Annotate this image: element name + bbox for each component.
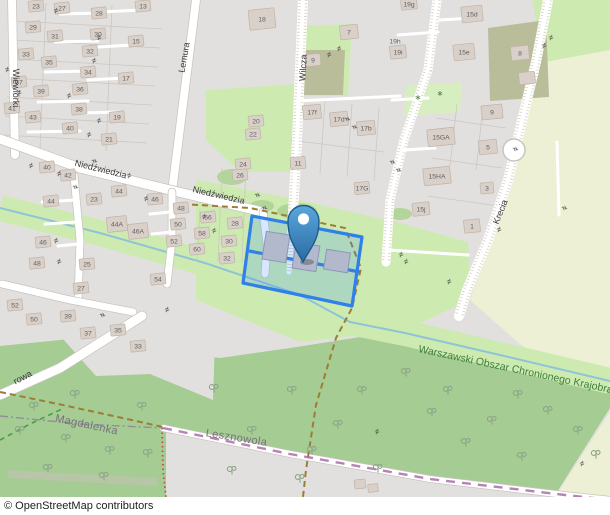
parcel-building <box>262 231 290 262</box>
house-number: 36 <box>76 87 84 94</box>
house-number: 37 <box>84 331 92 338</box>
house-number: 40 <box>66 126 74 133</box>
house-number: 30 <box>225 239 233 246</box>
house-number: 17 <box>122 76 130 83</box>
house-number: 3 <box>485 186 489 193</box>
house-number: 25 <box>83 262 91 269</box>
house-number: 48 <box>177 206 185 213</box>
house-number: 44 <box>47 199 55 206</box>
house-number: 33 <box>22 52 30 59</box>
house-number: 39 <box>64 314 72 321</box>
house-number: 1 <box>470 224 474 231</box>
house-number: 46 <box>151 197 159 204</box>
house-number: 35 <box>45 60 53 67</box>
attribution[interactable]: © OpenStreetMap contributors <box>0 497 610 515</box>
attribution-text[interactable]: © OpenStreetMap contributors <box>4 500 153 512</box>
house-number: 42 <box>64 173 72 180</box>
house-number: 32 <box>86 49 94 56</box>
house-number: 15 <box>132 39 140 46</box>
house-number: 52 <box>170 239 178 246</box>
plant-icon: ∗ <box>437 89 444 98</box>
house-number: 46 <box>39 240 47 247</box>
house-number: 26 <box>236 173 244 180</box>
house-number: 35 <box>114 328 122 335</box>
house-number: 27 <box>77 286 85 293</box>
pin-dot <box>298 213 309 224</box>
house-number: 19i <box>393 50 403 57</box>
house-number: 22 <box>249 132 257 139</box>
house-number: 15GA <box>432 135 450 142</box>
house-number: 20 <box>252 119 260 126</box>
house-number: 15j <box>416 207 426 214</box>
house-number: 9 <box>490 110 494 117</box>
house-number: 58 <box>198 231 206 238</box>
house-number: 8 <box>518 51 522 58</box>
house-number: 29 <box>29 25 37 32</box>
building <box>354 479 366 489</box>
house-number: 39 <box>37 89 45 96</box>
parcel-building <box>324 249 351 273</box>
house-number: 23 <box>32 4 40 11</box>
house-number: 18 <box>258 17 266 24</box>
house-number: 46A <box>132 229 145 236</box>
house-number: 5 <box>486 145 490 152</box>
house-number: 19 <box>113 115 121 122</box>
house-number: 13 <box>139 4 147 11</box>
house-number: 32 <box>223 256 231 263</box>
house-number: 15e <box>458 50 470 57</box>
house-number: 44 <box>115 189 123 196</box>
house-number: 15d <box>466 12 478 19</box>
house-number: 24 <box>239 162 247 169</box>
house-number: 17b <box>360 126 372 133</box>
map-canvas[interactable]: 2327282931303335323437393641433840131517… <box>0 0 610 497</box>
house-number: 33 <box>134 344 142 351</box>
map-widget: 2327282931303335323437393641433840131517… <box>0 0 610 515</box>
house-number: 52 <box>11 303 19 310</box>
house-number: 38 <box>75 107 83 114</box>
house-number: 31 <box>51 34 59 41</box>
building <box>518 71 535 85</box>
house-number: 40 <box>43 165 51 172</box>
house-number: 23 <box>90 197 98 204</box>
building <box>368 483 379 492</box>
house-number: 44A <box>111 222 124 229</box>
house-number: 19h <box>389 39 401 46</box>
house-number: 60 <box>193 247 201 254</box>
house-number: 50 <box>174 222 182 229</box>
street-label: Wiewiórki <box>11 69 21 108</box>
house-number: 9 <box>311 58 315 65</box>
house-number: 43 <box>29 115 37 122</box>
street-label: Wilcza <box>297 54 308 81</box>
house-number: 28 <box>95 11 103 18</box>
house-number: 19g <box>403 2 415 9</box>
house-number: 7 <box>347 30 351 37</box>
house-number: 50 <box>30 317 38 324</box>
house-number: 48 <box>33 261 41 268</box>
plant-icon: ∗ <box>415 93 422 102</box>
house-number: 21 <box>105 137 113 144</box>
house-number: 27 <box>58 6 66 13</box>
house-number: 17f <box>307 110 317 117</box>
house-number: 17G <box>356 186 369 193</box>
house-number: 34 <box>84 70 92 77</box>
house-number: 54 <box>154 277 162 284</box>
house-number: 28 <box>231 221 239 228</box>
house-number: 11 <box>294 161 301 168</box>
house-number: 15HA <box>428 174 445 181</box>
